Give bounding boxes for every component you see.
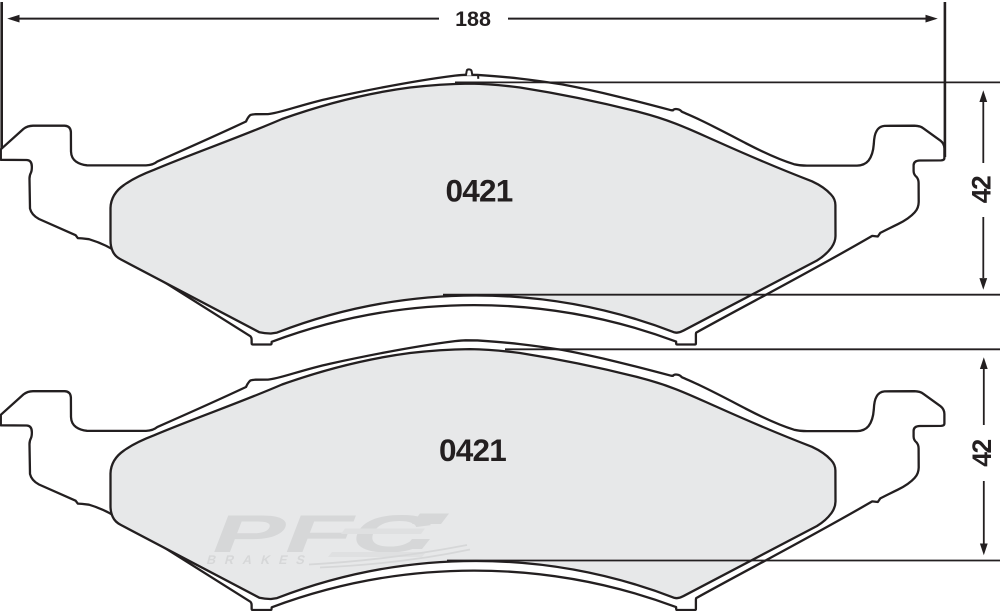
svg-text:188: 188	[455, 7, 491, 31]
svg-text:BRAKES: BRAKES	[205, 552, 316, 567]
svg-text:42: 42	[967, 176, 997, 203]
svg-text:42: 42	[967, 440, 997, 467]
svg-text:0421: 0421	[446, 173, 513, 209]
svg-text:0421: 0421	[439, 432, 506, 468]
